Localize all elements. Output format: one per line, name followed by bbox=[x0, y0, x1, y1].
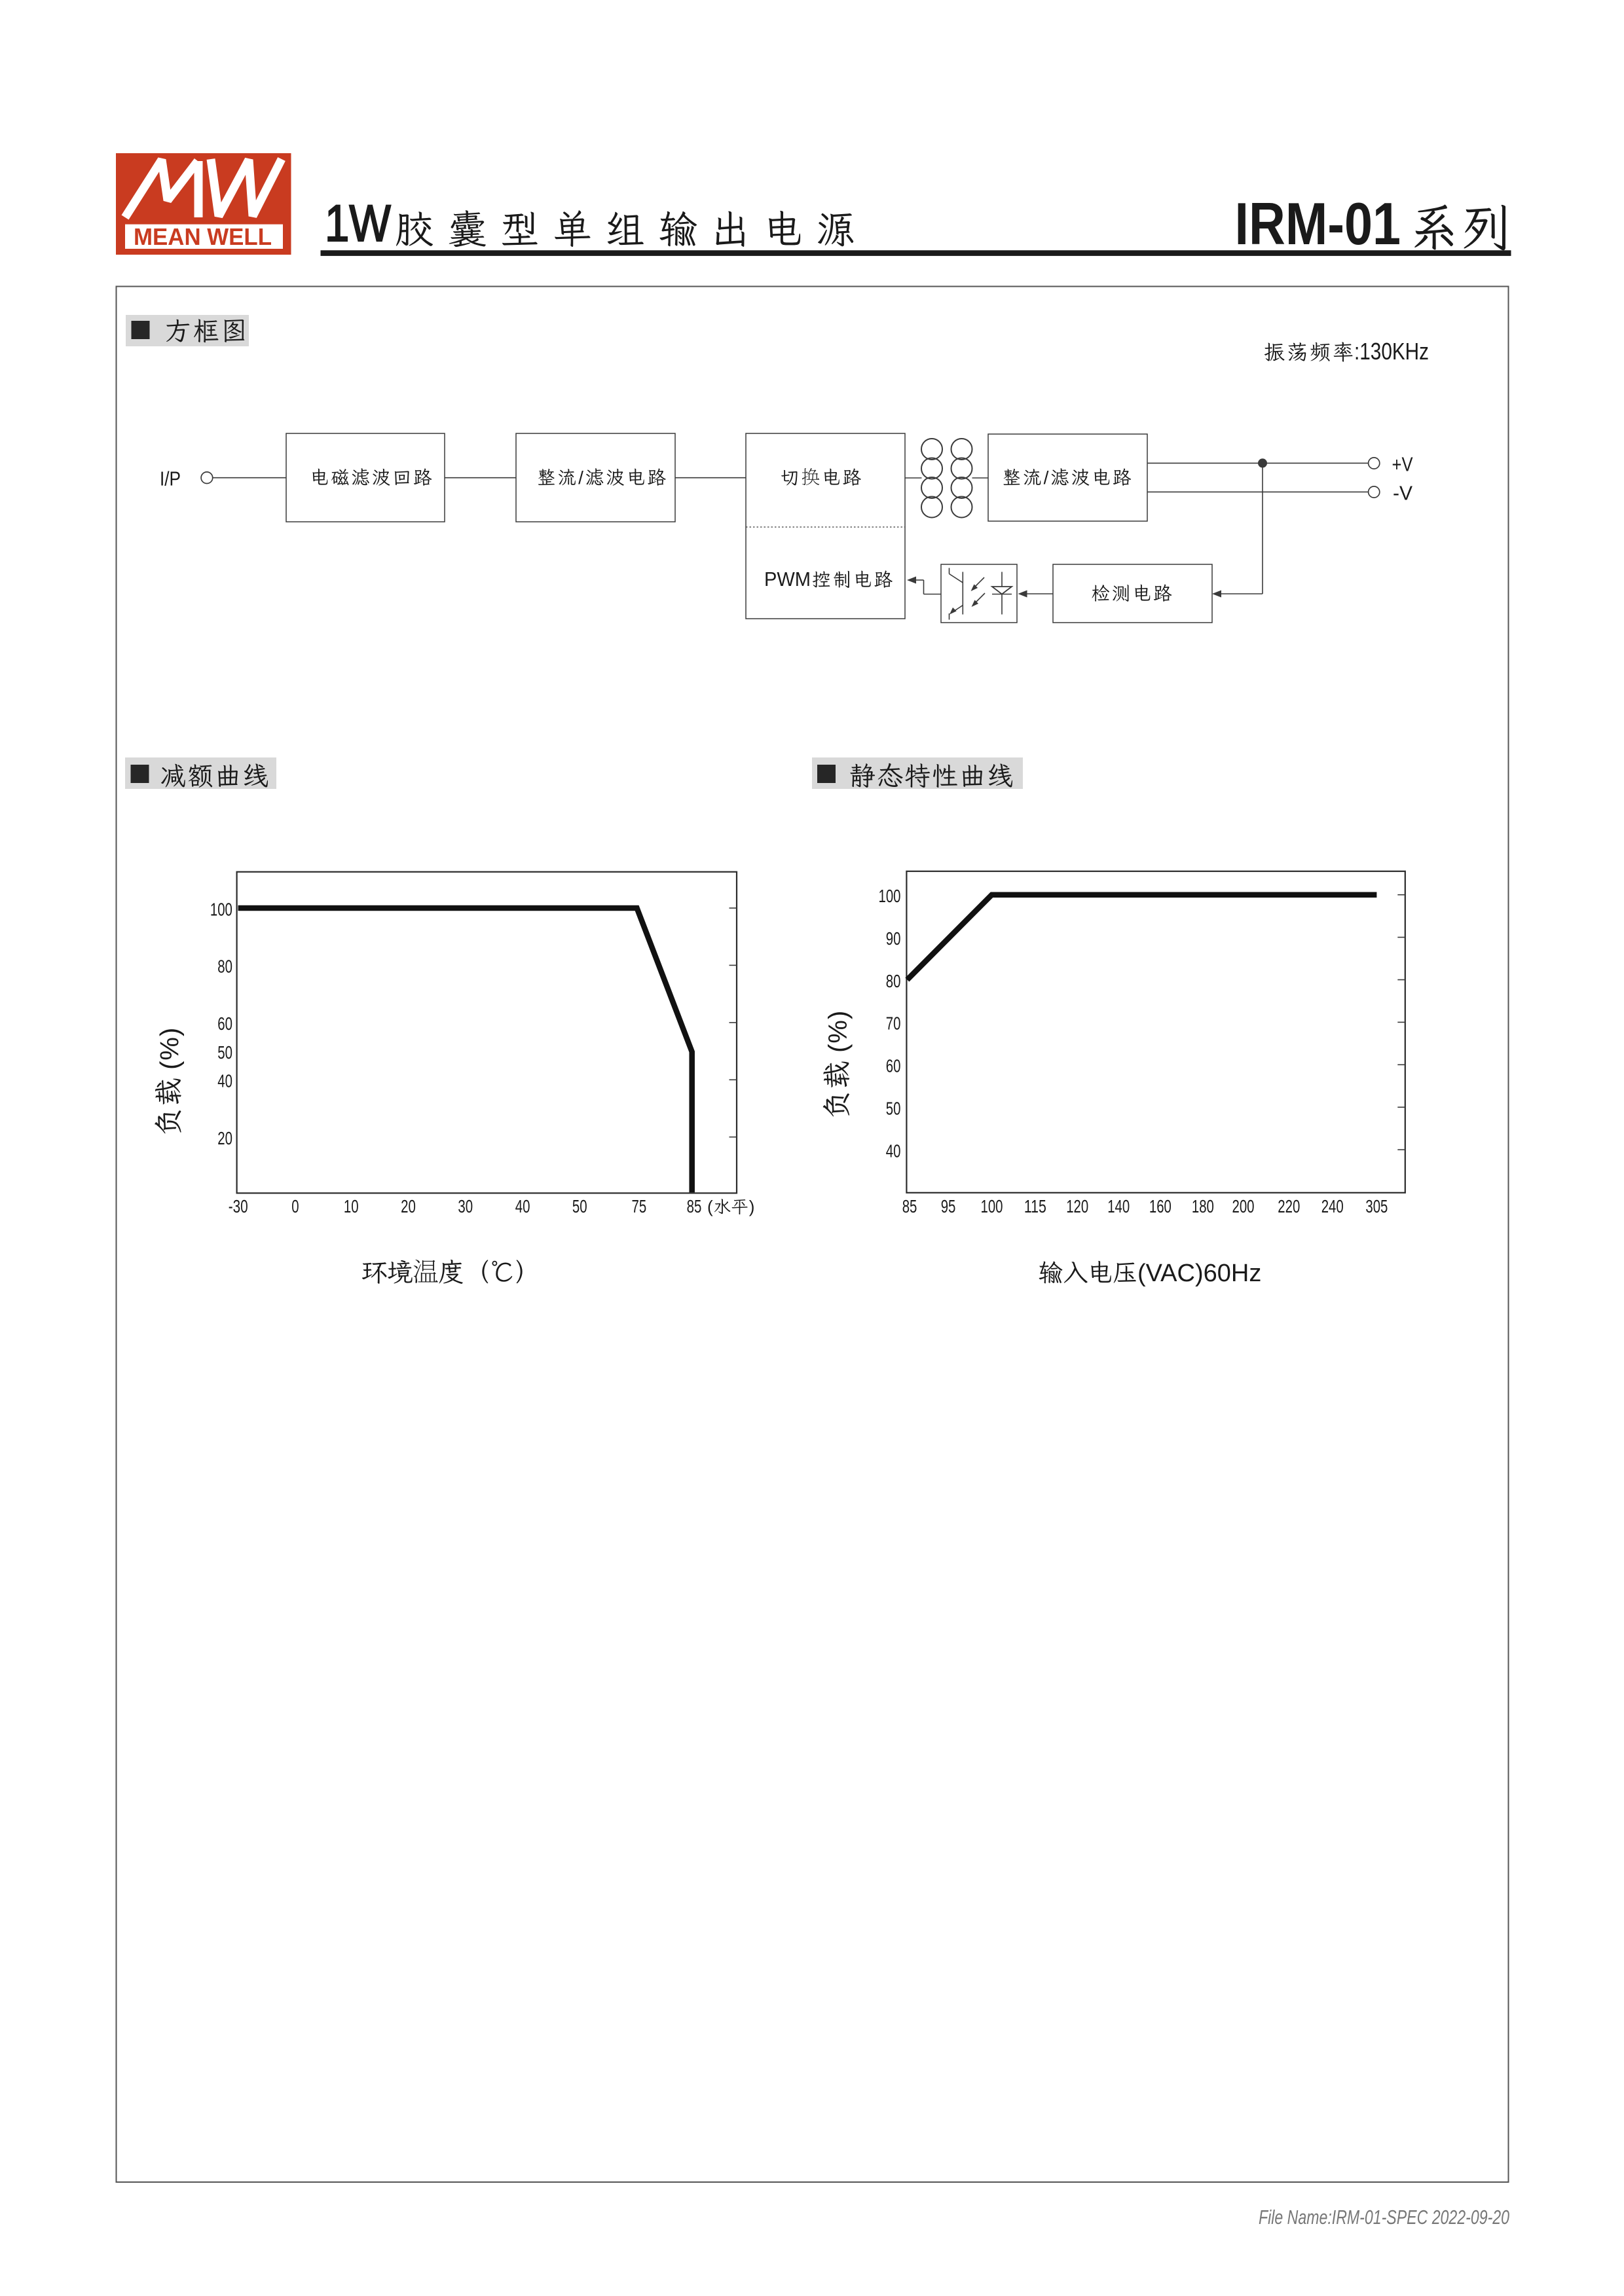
svg-text:100: 100 bbox=[210, 899, 232, 919]
svg-text:80: 80 bbox=[217, 957, 232, 977]
svg-text:): ) bbox=[749, 1197, 756, 1216]
svg-text:(: ( bbox=[707, 1197, 714, 1216]
svg-text:(%): (%) bbox=[824, 1010, 853, 1053]
svg-text:+V: +V bbox=[1392, 453, 1413, 476]
svg-text:IRM-01: IRM-01 bbox=[1235, 191, 1401, 257]
svg-text:100: 100 bbox=[981, 1196, 1003, 1216]
svg-text:200: 200 bbox=[1232, 1196, 1255, 1216]
svg-text:120: 120 bbox=[1066, 1196, 1088, 1216]
svg-text:75: 75 bbox=[632, 1196, 647, 1216]
svg-text:50: 50 bbox=[572, 1196, 587, 1216]
svg-text:20: 20 bbox=[217, 1128, 232, 1148]
svg-text:-30: -30 bbox=[229, 1196, 248, 1216]
svg-text:50: 50 bbox=[886, 1099, 901, 1119]
svg-text:30: 30 bbox=[458, 1196, 473, 1216]
svg-text:115: 115 bbox=[1024, 1196, 1046, 1216]
svg-text:70: 70 bbox=[886, 1013, 901, 1034]
svg-text:85: 85 bbox=[687, 1196, 702, 1216]
svg-text:MEAN WELL: MEAN WELL bbox=[134, 223, 272, 250]
svg-text:40: 40 bbox=[217, 1071, 232, 1091]
svg-text:50: 50 bbox=[217, 1042, 232, 1063]
svg-text:-V: -V bbox=[1393, 482, 1412, 505]
svg-text:60: 60 bbox=[886, 1056, 901, 1076]
svg-text:100: 100 bbox=[879, 886, 901, 906]
svg-text:90: 90 bbox=[886, 928, 901, 949]
svg-text:240: 240 bbox=[1321, 1196, 1344, 1216]
svg-text:20: 20 bbox=[401, 1196, 416, 1216]
svg-text:220: 220 bbox=[1278, 1196, 1300, 1216]
svg-text:160: 160 bbox=[1149, 1196, 1172, 1216]
svg-text:(%): (%) bbox=[156, 1027, 185, 1070]
svg-text:10: 10 bbox=[344, 1196, 359, 1216]
svg-text:80: 80 bbox=[886, 971, 901, 991]
svg-text:40: 40 bbox=[886, 1140, 901, 1161]
svg-text:(VAC)60Hz: (VAC)60Hz bbox=[1137, 1260, 1261, 1287]
svg-text:85: 85 bbox=[902, 1196, 917, 1216]
svg-text:PWM: PWM bbox=[764, 568, 811, 591]
svg-text:305: 305 bbox=[1365, 1196, 1388, 1216]
svg-text:40: 40 bbox=[515, 1196, 530, 1216]
svg-text:/: / bbox=[1044, 467, 1051, 488]
svg-text:0: 0 bbox=[291, 1196, 299, 1216]
svg-text:1W: 1W bbox=[325, 194, 391, 252]
svg-text::130KHz: :130KHz bbox=[1354, 338, 1429, 365]
svg-text:180: 180 bbox=[1192, 1196, 1214, 1216]
svg-text:/: / bbox=[578, 467, 585, 488]
svg-text:95: 95 bbox=[941, 1196, 956, 1216]
svg-text:File Name:IRM-01-SPEC 2022-09: File Name:IRM-01-SPEC 2022-09-20 bbox=[1259, 2206, 1509, 2229]
svg-text:I/P: I/P bbox=[160, 467, 181, 490]
svg-text:140: 140 bbox=[1107, 1196, 1130, 1216]
svg-text:60: 60 bbox=[217, 1013, 232, 1034]
